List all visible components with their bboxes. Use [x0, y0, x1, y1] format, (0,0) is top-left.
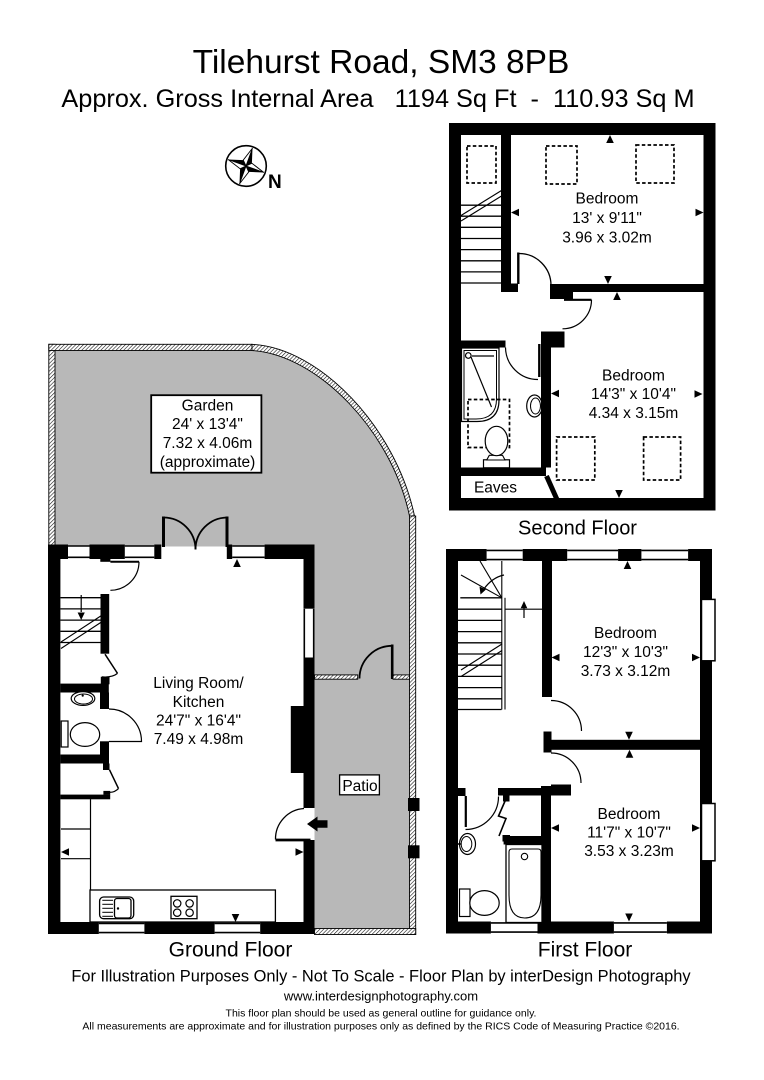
svg-text:24' x 13'4": 24' x 13'4" — [172, 416, 243, 433]
svg-text:11'7" x 10'7": 11'7" x 10'7" — [587, 825, 671, 842]
svg-text:13' x 9'11": 13' x 9'11" — [572, 210, 642, 227]
svg-text:Bedroom: Bedroom — [594, 625, 657, 642]
svg-text:Living Room/: Living Room/ — [153, 675, 244, 692]
svg-text:For Illustration Purposes Only: For Illustration Purposes Only - Not To … — [71, 968, 691, 986]
svg-text:7.32 x 4.06m: 7.32 x 4.06m — [163, 435, 253, 452]
svg-text:14'3" x 10'4": 14'3" x 10'4" — [591, 386, 676, 403]
svg-text:Tilehurst Road, SM3 8PB: Tilehurst Road, SM3 8PB — [193, 44, 570, 81]
svg-text:3.96 x 3.02m: 3.96 x 3.02m — [562, 230, 652, 247]
svg-text:Garden: Garden — [182, 398, 234, 415]
svg-text:First Floor: First Floor — [538, 939, 633, 962]
svg-text:All measurements are approxima: All measurements are approximate and for… — [82, 1021, 679, 1033]
svg-text:Bedroom: Bedroom — [602, 368, 665, 385]
svg-text:N: N — [268, 172, 282, 193]
svg-text:4.34 x 3.15m: 4.34 x 3.15m — [589, 405, 679, 422]
svg-text:Bedroom: Bedroom — [576, 191, 639, 208]
svg-text:This floor plan should be used: This floor plan should be used as genera… — [226, 1008, 537, 1020]
svg-text:Eaves: Eaves — [474, 480, 517, 497]
svg-text:24'7" x 16'4": 24'7" x 16'4" — [156, 713, 241, 730]
svg-text:Patio: Patio — [342, 778, 377, 795]
svg-text:Second Floor: Second Floor — [518, 518, 637, 540]
svg-text:3.53 x 3.23m: 3.53 x 3.23m — [584, 843, 674, 860]
svg-text:Kitchen: Kitchen — [173, 694, 225, 711]
svg-text:3.73 x 3.12m: 3.73 x 3.12m — [581, 663, 671, 680]
svg-text:www.interdesignphotography.com: www.interdesignphotography.com — [283, 989, 478, 1004]
svg-text:Approx. Gross Internal Area: Approx. Gross Internal Area 1194 Sq Ft -… — [61, 85, 694, 113]
svg-text:12'3" x 10'3": 12'3" x 10'3" — [583, 644, 668, 661]
svg-text:(approximate): (approximate) — [160, 454, 256, 471]
svg-text:7.49 x 4.98m: 7.49 x 4.98m — [154, 731, 244, 748]
svg-text:Bedroom: Bedroom — [598, 806, 661, 823]
svg-text:Ground Floor: Ground Floor — [169, 939, 293, 962]
